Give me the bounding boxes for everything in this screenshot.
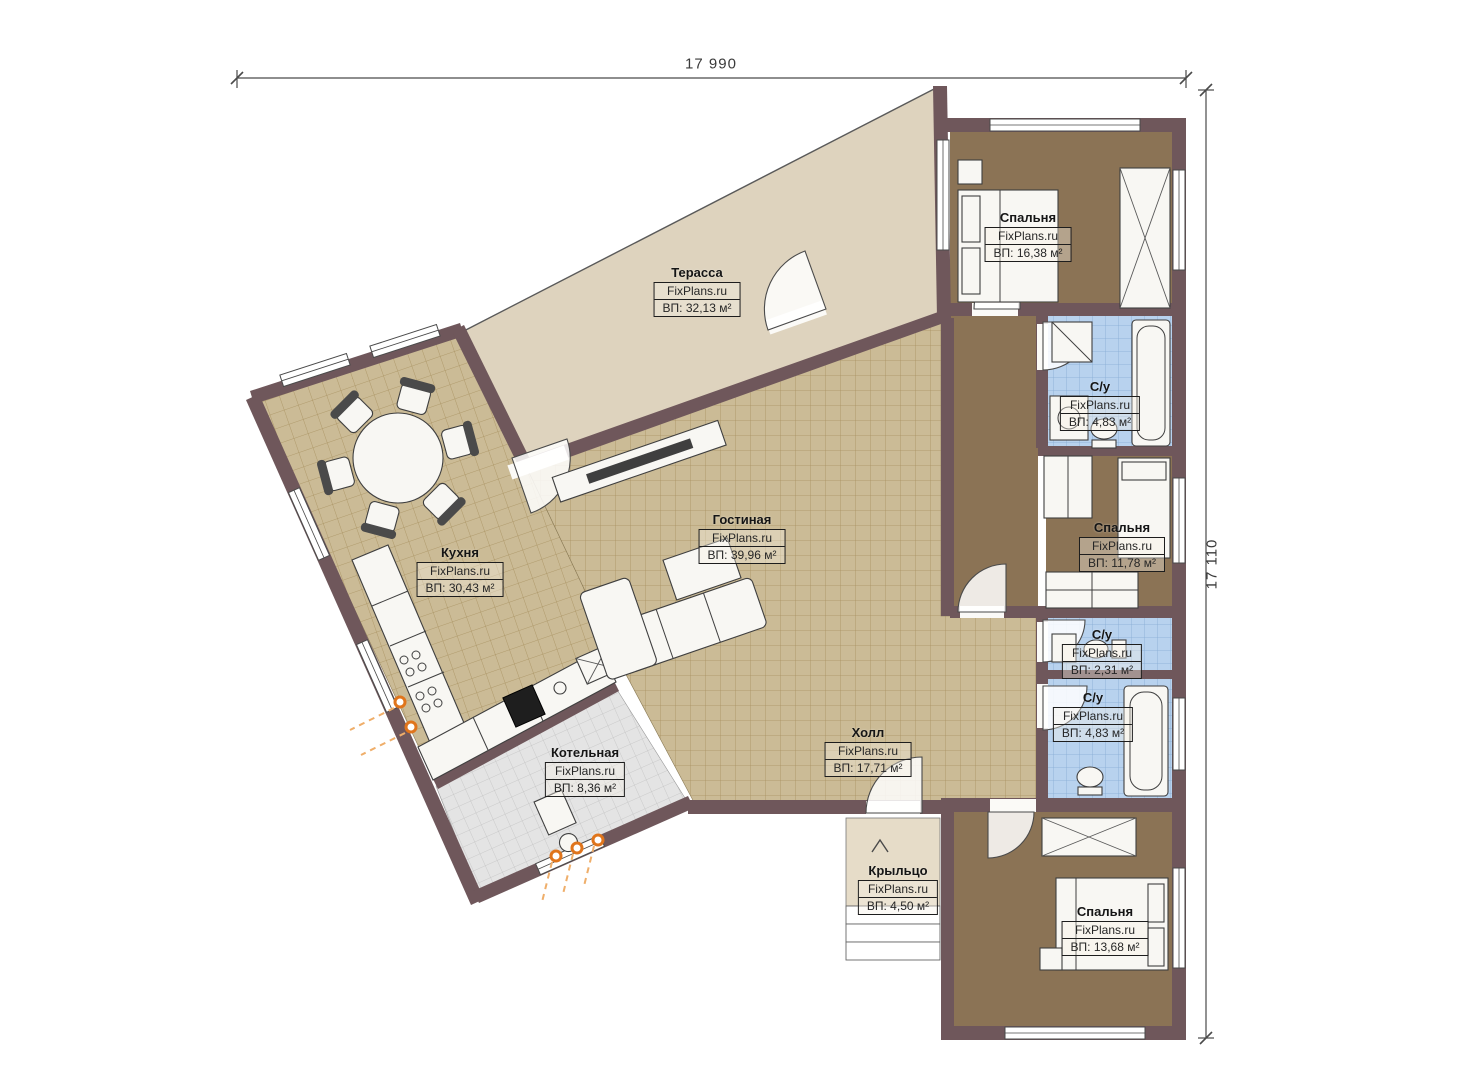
watermark-fixplans: FixPlans.ru xyxy=(546,763,624,780)
nightstand xyxy=(958,160,982,184)
room-area: ВП: 39,96 м² xyxy=(700,547,785,563)
nightstand xyxy=(1040,948,1062,970)
room-name: Холл xyxy=(825,725,912,740)
watermark-fixplans: FixPlans.ru xyxy=(700,530,785,547)
room-label-living: Гостиная FixPlans.ru ВП: 39,96 м² xyxy=(699,512,786,564)
room-info-box: FixPlans.ru ВП: 11,78 м² xyxy=(1079,537,1165,572)
room-label-kitchen: Кухня FixPlans.ru ВП: 30,43 м² xyxy=(417,545,504,597)
room-area: ВП: 17,71 м² xyxy=(826,760,911,776)
room-label-bedroom-middle: Спальня FixPlans.ru ВП: 11,78 м² xyxy=(1079,520,1165,572)
room-area: ВП: 30,43 м² xyxy=(418,580,503,596)
room-info-box: FixPlans.ru ВП: 4,83 м² xyxy=(1053,707,1133,742)
room-name: Терасса xyxy=(654,265,741,280)
room-area: ВП: 2,31 м² xyxy=(1063,662,1141,678)
room-area: ВП: 13,68 м² xyxy=(1063,939,1148,955)
watermark-fixplans: FixPlans.ru xyxy=(1063,922,1148,939)
room-area: ВП: 4,83 м² xyxy=(1061,414,1139,430)
room-label-bathroom-small: С/у FixPlans.ru ВП: 2,31 м² xyxy=(1062,627,1142,679)
room-label-bathroom-top: С/у FixPlans.ru ВП: 4,83 м² xyxy=(1060,379,1140,431)
room-name: Спальня xyxy=(985,210,1072,225)
gas-point-icon xyxy=(593,835,603,845)
watermark-fixplans: FixPlans.ru xyxy=(655,283,740,300)
room-area: ВП: 4,83 м² xyxy=(1054,725,1132,741)
room-area: ВП: 16,38 м² xyxy=(986,245,1071,261)
watermark-fixplans: FixPlans.ru xyxy=(1063,645,1141,662)
room-label-hall: Холл FixPlans.ru ВП: 17,71 м² xyxy=(825,725,912,777)
room-area: ВП: 11,78 м² xyxy=(1080,555,1164,571)
watermark-fixplans: FixPlans.ru xyxy=(826,743,911,760)
room-info-box: FixPlans.ru ВП: 8,36 м² xyxy=(545,762,625,797)
room-info-box: FixPlans.ru ВП: 32,13 м² xyxy=(654,282,741,317)
gas-point-icon xyxy=(551,851,561,861)
room-area: ВП: 8,36 м² xyxy=(546,780,624,796)
gas-point-icon xyxy=(572,843,582,853)
room-label-bathroom-lower: С/у FixPlans.ru ВП: 4,83 м² xyxy=(1053,690,1133,742)
room-info-box: FixPlans.ru ВП: 13,68 м² xyxy=(1062,921,1149,956)
room-name: Гостиная xyxy=(699,512,786,527)
room-name: Спальня xyxy=(1062,904,1149,919)
watermark-fixplans: FixPlans.ru xyxy=(1061,397,1139,414)
room-name: Кухня xyxy=(417,545,504,560)
watermark-fixplans: FixPlans.ru xyxy=(859,881,937,898)
room-label-terrace: Терасса FixPlans.ru ВП: 32,13 м² xyxy=(654,265,741,317)
room-label-boiler: Котельная FixPlans.ru ВП: 8,36 м² xyxy=(545,745,625,797)
room-info-box: FixPlans.ru ВП: 16,38 м² xyxy=(985,227,1072,262)
room-name: Спальня xyxy=(1079,520,1165,535)
dining-table xyxy=(353,413,443,503)
room-name: С/у xyxy=(1062,627,1142,642)
room-info-box: FixPlans.ru ВП: 17,71 м² xyxy=(825,742,912,777)
porch-step xyxy=(846,924,940,942)
floor-plan-canvas: 17 990 17 110 Терасса FixPlans.ru ВП: 32… xyxy=(0,0,1473,1080)
toilet xyxy=(1077,767,1103,787)
room-label-bedroom-bottom: Спальня FixPlans.ru ВП: 13,68 м² xyxy=(1062,904,1149,956)
gas-point-icon xyxy=(406,722,416,732)
room-name: С/у xyxy=(1053,690,1133,705)
watermark-fixplans: FixPlans.ru xyxy=(1080,538,1164,555)
room-area: ВП: 4,50 м² xyxy=(859,898,937,914)
watermark-fixplans: FixPlans.ru xyxy=(418,563,503,580)
room-info-box: FixPlans.ru ВП: 2,31 м² xyxy=(1062,644,1142,679)
dimension-top-label: 17 990 xyxy=(685,56,737,73)
room-info-box: FixPlans.ru ВП: 4,50 м² xyxy=(858,880,938,915)
room-label-bedroom-top: Спальня FixPlans.ru ВП: 16,38 м² xyxy=(985,210,1072,262)
room-info-box: FixPlans.ru ВП: 39,96 м² xyxy=(699,529,786,564)
gas-point-icon xyxy=(395,697,405,707)
room-info-box: FixPlans.ru ВП: 30,43 м² xyxy=(417,562,504,597)
room-area: ВП: 32,13 м² xyxy=(655,300,740,316)
room-name: Котельная xyxy=(545,745,625,760)
room-info-box: FixPlans.ru ВП: 4,83 м² xyxy=(1060,396,1140,431)
watermark-fixplans: FixPlans.ru xyxy=(986,228,1071,245)
dimension-right-label: 17 110 xyxy=(1204,539,1221,590)
room-name: С/у xyxy=(1060,379,1140,394)
room-name: Крыльцо xyxy=(858,863,938,878)
porch-step xyxy=(846,942,940,960)
room-label-porch: Крыльцо FixPlans.ru ВП: 4,50 м² xyxy=(858,863,938,915)
watermark-fixplans: FixPlans.ru xyxy=(1054,708,1132,725)
